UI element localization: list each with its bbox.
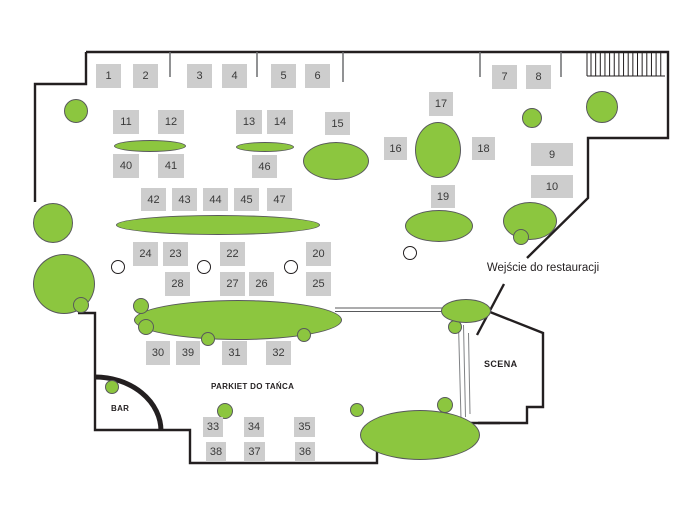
stool-circle	[284, 260, 298, 274]
table-43[interactable]: 43	[172, 188, 197, 211]
table-20[interactable]: 20	[306, 242, 331, 266]
oval-table	[405, 210, 473, 242]
table-26[interactable]: 26	[249, 272, 274, 296]
table-17[interactable]: 17	[429, 92, 453, 116]
corridor-lines	[459, 325, 471, 419]
table-9[interactable]: 9	[531, 143, 573, 166]
round-table	[522, 108, 542, 128]
round-table	[33, 203, 73, 243]
oval-table	[503, 202, 557, 240]
table-19[interactable]: 19	[431, 185, 455, 208]
table-41[interactable]: 41	[158, 154, 184, 178]
table-16[interactable]: 16	[384, 137, 407, 160]
table-45[interactable]: 45	[234, 188, 259, 211]
table-15[interactable]: 15	[325, 112, 350, 135]
railing-lines	[335, 308, 442, 312]
table-18[interactable]: 18	[472, 137, 495, 160]
table-22[interactable]: 22	[220, 242, 245, 266]
stage-label: SCENA	[484, 359, 518, 369]
stairs-hatch-icon	[591, 53, 661, 76]
stool-circle	[403, 246, 417, 260]
table-27[interactable]: 27	[220, 272, 245, 296]
oval-table	[303, 142, 369, 180]
table-2[interactable]: 2	[133, 64, 158, 88]
table-12[interactable]: 12	[158, 110, 184, 134]
table-4[interactable]: 4	[222, 64, 247, 88]
table-6[interactable]: 6	[305, 64, 330, 88]
table-39[interactable]: 39	[176, 341, 200, 365]
restaurant-floorplan: Wejście do restauracji SCENA BAR PARKIET…	[0, 0, 700, 520]
oval-table	[415, 122, 461, 178]
table-14[interactable]: 14	[267, 110, 293, 134]
oval-table	[236, 142, 294, 152]
chair-circle	[138, 319, 154, 335]
table-5[interactable]: 5	[271, 64, 296, 88]
banquet-table	[116, 215, 320, 235]
stairs-edge	[587, 52, 665, 76]
table-25[interactable]: 25	[306, 272, 331, 296]
chair-circle	[73, 297, 89, 313]
table-8[interactable]: 8	[526, 65, 551, 89]
table-10[interactable]: 10	[531, 175, 573, 198]
entrance-label: Wejście do restauracji	[483, 262, 603, 274]
table-46[interactable]: 46	[252, 155, 277, 178]
table-28[interactable]: 28	[165, 272, 190, 296]
table-24[interactable]: 24	[133, 242, 158, 266]
chair-circle	[297, 328, 311, 342]
table-11[interactable]: 11	[113, 110, 139, 134]
table-3[interactable]: 3	[187, 64, 212, 88]
oval-table	[114, 140, 186, 152]
table-13[interactable]: 13	[236, 110, 262, 134]
host-table	[441, 299, 491, 323]
oval-table	[360, 410, 480, 460]
table-36[interactable]: 36	[295, 442, 315, 462]
table-1[interactable]: 1	[96, 64, 121, 88]
table-33[interactable]: 33	[203, 417, 223, 437]
stool-circle	[111, 260, 125, 274]
table-38[interactable]: 38	[206, 442, 226, 462]
table-34[interactable]: 34	[244, 417, 264, 437]
table-35[interactable]: 35	[294, 417, 315, 437]
table-30[interactable]: 30	[146, 341, 170, 365]
bar-label: BAR	[111, 404, 129, 413]
chair-circle	[513, 229, 529, 245]
round-table	[586, 91, 618, 123]
table-44[interactable]: 44	[203, 188, 228, 211]
table-42[interactable]: 42	[141, 188, 166, 211]
table-23[interactable]: 23	[163, 242, 188, 266]
round-table	[64, 99, 88, 123]
table-32[interactable]: 32	[266, 341, 291, 365]
table-37[interactable]: 37	[244, 442, 265, 462]
chair-circle	[350, 403, 364, 417]
table-47[interactable]: 47	[267, 188, 292, 211]
stool-circle	[197, 260, 211, 274]
table-31[interactable]: 31	[222, 341, 247, 365]
table-7[interactable]: 7	[492, 65, 517, 89]
chair-circle	[105, 380, 119, 394]
dance-floor-label: PARKIET DO TAŃCA	[211, 382, 294, 391]
chair-circle	[133, 298, 149, 314]
chair-circle	[201, 332, 215, 346]
wall-outline-left	[35, 52, 86, 202]
table-40[interactable]: 40	[113, 154, 139, 178]
